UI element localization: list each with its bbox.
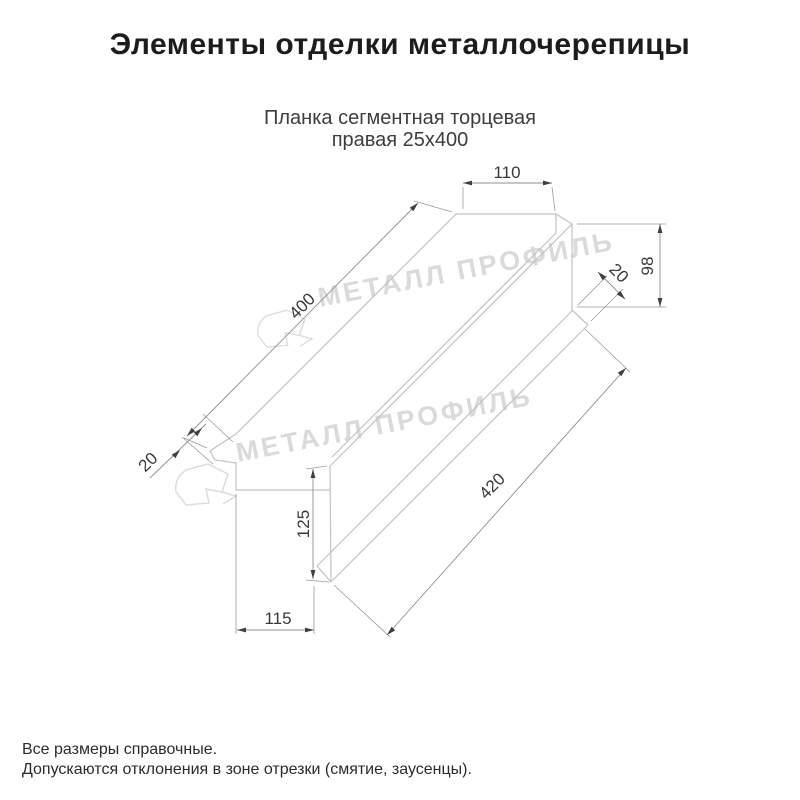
dim-label-end-hem: 20 <box>605 260 632 287</box>
footer-note-line2: Допускаются отклонения в зоне отрезки (с… <box>22 760 472 780</box>
footer-notes: Все размеры справочные. Допускаются откл… <box>22 740 472 780</box>
footer-note-line1: Все размеры справочные. <box>22 740 472 760</box>
metall-profil-logo-icon <box>176 464 236 505</box>
dim-label-left-bottom-width: 115 <box>264 609 291 628</box>
dim-label-top-width: 110 <box>493 163 520 182</box>
watermark-upper: МЕТАЛЛ ПРОФИЛЬ <box>258 226 617 347</box>
dim-label-top-length: 400 <box>285 289 318 322</box>
dim-label-left-height: 125 <box>294 510 313 538</box>
dim-label-end-height: 98 <box>638 257 657 276</box>
dim-label-flange-length: 420 <box>475 469 508 502</box>
dim-label-left-hem: 20 <box>135 449 162 476</box>
catalog-card: Элементы отделки металлочерепицы Планка … <box>0 0 800 800</box>
technical-drawing: МЕТАЛЛ ПРОФИЛЬ МЕТАЛЛ ПРОФИЛЬ <box>0 0 800 800</box>
